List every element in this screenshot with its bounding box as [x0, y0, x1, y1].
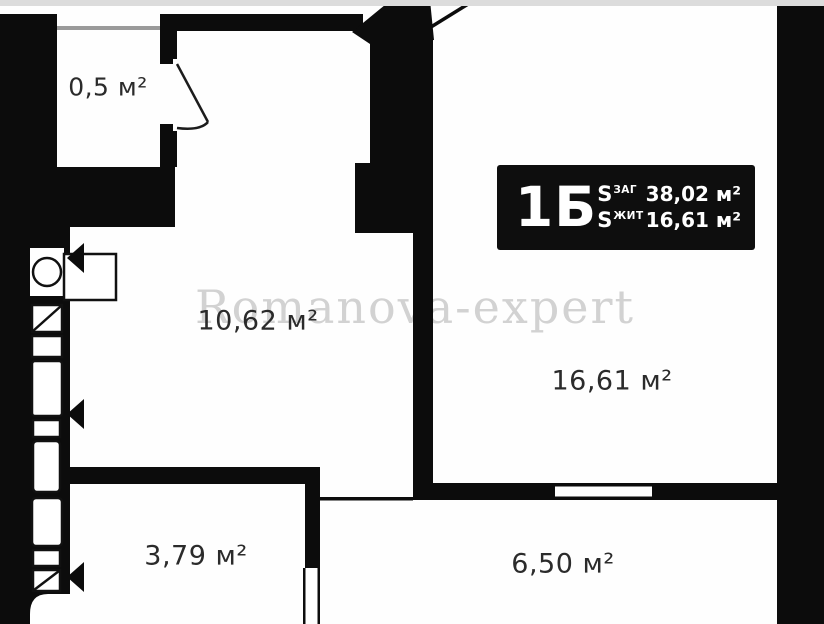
total-area-symbol: SЗАГ	[597, 184, 637, 205]
door-nub-top	[160, 57, 173, 64]
vent-duct-circle	[33, 258, 61, 286]
doorway-line-right	[318, 568, 321, 624]
wall-bathroom-right	[305, 484, 320, 568]
room-label-living: 16,61 м²	[551, 366, 672, 397]
image-top-border	[0, 0, 824, 6]
wall-storage-right-bottom	[160, 131, 177, 167]
shaft-curved-cutout	[30, 594, 70, 624]
shaft-panel	[33, 420, 60, 437]
living-area-symbol: SЖИТ	[597, 210, 643, 231]
shaft-panel	[32, 361, 62, 416]
room-label-hallway: 10,62 м²	[197, 306, 318, 337]
door-nub-bottom	[160, 124, 173, 132]
window-line-bottom	[555, 497, 652, 501]
living-area-value: 16,61 м²	[646, 210, 741, 230]
opening-line-hall-kitchen	[320, 497, 413, 501]
wall-top-middle	[160, 14, 363, 31]
total-area-value: 38,02 м²	[646, 184, 741, 204]
shaft-panel	[33, 550, 60, 566]
shaft-panel	[32, 498, 62, 546]
door-leaf-line	[177, 64, 208, 122]
wall-top-left	[0, 14, 57, 31]
wall-living-bottom-left	[413, 483, 555, 500]
storage-door-swing	[177, 64, 208, 129]
window-line-top	[555, 483, 652, 487]
wall-left-upper	[0, 30, 57, 171]
doorway-line-left	[303, 568, 306, 624]
wall-living-bottom-right	[652, 483, 777, 500]
unit-info-card: 1Б SЗАГ 38,02 м² SЖИТ 16,61 м²	[497, 165, 755, 250]
shaft-panel	[33, 441, 60, 492]
wall-pillar	[370, 30, 433, 233]
wall-below-storage	[0, 167, 175, 227]
room-label-kitchen: 6,50 м²	[511, 549, 614, 580]
storage-window-sill	[57, 26, 160, 30]
wall-living-left	[413, 233, 433, 497]
door-arc	[177, 122, 208, 129]
room-label-storage: 0,5 м²	[68, 73, 148, 102]
shaft-panel	[32, 336, 62, 357]
wall-bathroom-top	[70, 467, 320, 484]
floor-plan: Romanova-expert	[0, 0, 824, 624]
total-area-row: SЗАГ 38,02 м²	[597, 184, 741, 205]
unit-number: 1Б	[515, 180, 597, 235]
area-summary: SЗАГ 38,02 м² SЖИТ 16,61 м²	[597, 184, 741, 231]
wall-storage-right-top	[160, 31, 177, 59]
wall-pillar-step	[355, 163, 372, 233]
room-label-bathroom: 3,79 м²	[144, 541, 247, 572]
wall-right-outer	[777, 0, 824, 624]
living-area-row: SЖИТ 16,61 м²	[597, 210, 741, 231]
